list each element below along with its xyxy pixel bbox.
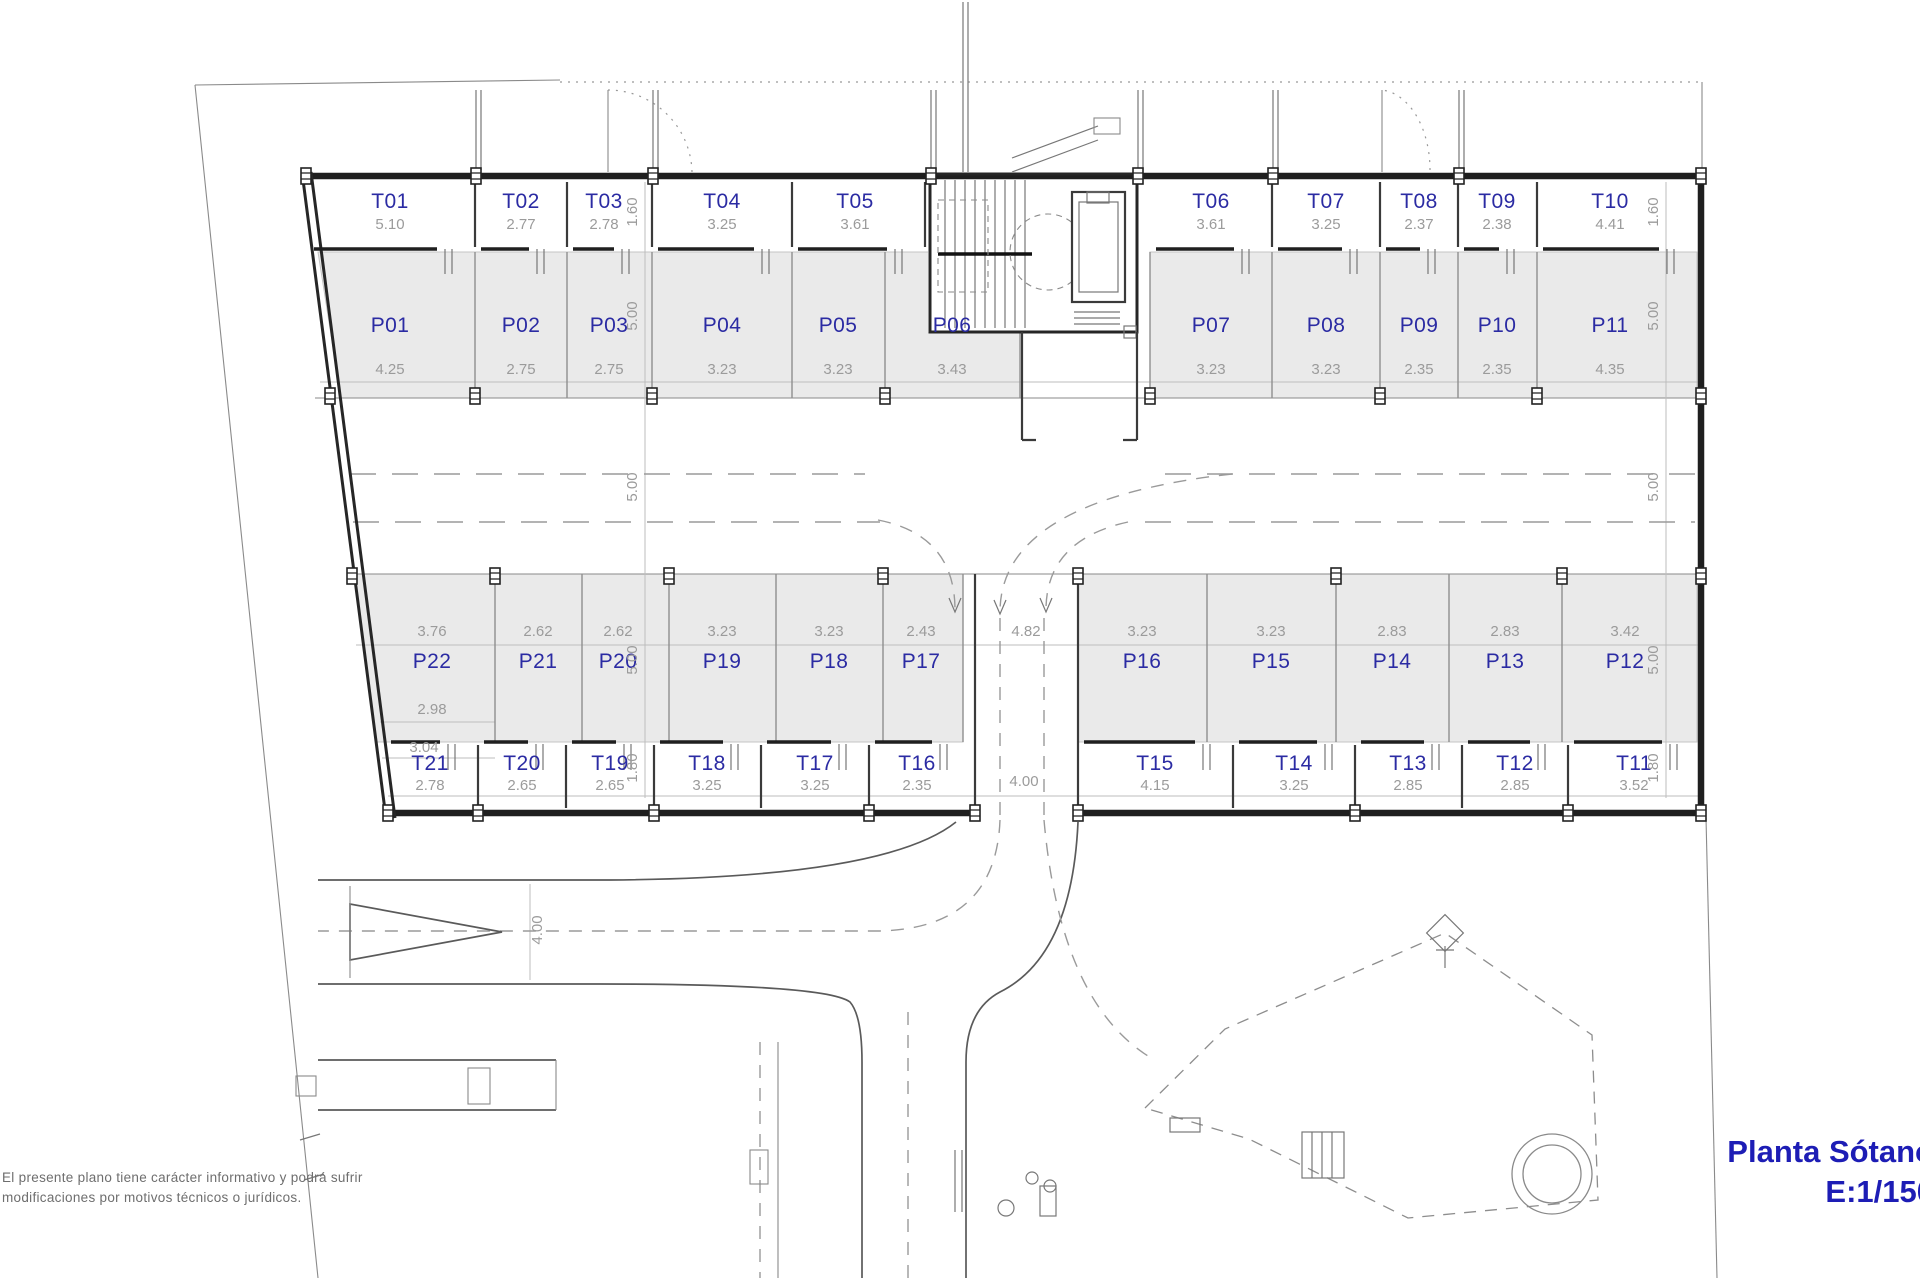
parking-dim-P16: 3.23 <box>1127 623 1156 640</box>
parking-dim-P07: 3.23 <box>1196 361 1225 378</box>
terrace-layout <box>955 915 1598 1218</box>
storage-dim-T02: 2.77 <box>506 216 535 233</box>
storage-dim-T01: 5.10 <box>375 216 404 233</box>
parking-dim-P12: 3.42 <box>1610 623 1639 640</box>
storage-dim-T21: 2.78 <box>415 777 444 794</box>
parking-label-P21: P21 <box>519 650 558 673</box>
parking-label-P08: P08 <box>1307 314 1346 337</box>
storage-dim-T16: 2.35 <box>902 777 931 794</box>
storage-label-T07: T07 <box>1307 190 1344 213</box>
storage-label-T05: T05 <box>836 190 873 213</box>
parking-label-P10: P10 <box>1478 314 1517 337</box>
vdim-aisle-left: 5.00 <box>624 472 641 501</box>
storage-dim-T06: 3.61 <box>1196 216 1225 233</box>
parking-dim-P05: 3.23 <box>823 361 852 378</box>
disclaimer-note: El presente plano tiene carácter informa… <box>2 1168 502 1209</box>
parking-label-P09: P09 <box>1400 314 1439 337</box>
dim-p22-b: 3.04 <box>409 739 438 756</box>
storage-label-T20: T20 <box>503 752 540 775</box>
elevator-icon <box>1072 192 1125 302</box>
parking-label-P05: P05 <box>819 314 858 337</box>
parking-label-P12: P12 <box>1606 650 1645 673</box>
vdim-parking-right: 5.00 <box>1645 301 1662 330</box>
parking-label-P13: P13 <box>1486 650 1525 673</box>
storage-label-T01: T01 <box>371 190 408 213</box>
storage-dim-T14: 3.25 <box>1279 777 1308 794</box>
parking-label-P16: P16 <box>1123 650 1162 673</box>
parking-label-P11: P11 <box>1591 314 1628 337</box>
parking-label-P01: P01 <box>371 314 410 337</box>
parking-label-P15: P15 <box>1252 650 1291 673</box>
storage-label-T06: T06 <box>1192 190 1229 213</box>
parking-dim-P01: 4.25 <box>375 361 404 378</box>
storage-label-T14: T14 <box>1275 752 1312 775</box>
parking-label-P22: P22 <box>413 650 452 673</box>
storage-label-T17: T17 <box>796 752 833 775</box>
storage-dim-T08: 2.37 <box>1404 216 1433 233</box>
dim-p22-a: 2.98 <box>417 701 446 718</box>
parking-dim-P09: 2.35 <box>1404 361 1433 378</box>
vdim-lower-storage-left: 1.80 <box>624 753 641 782</box>
parking-label-P07: P07 <box>1192 314 1231 337</box>
parking-dim-P03: 2.75 <box>594 361 623 378</box>
storage-label-T02: T02 <box>502 190 539 213</box>
parking-dim-P06: 3.43 <box>937 361 966 378</box>
storage-label-T13: T13 <box>1389 752 1426 775</box>
floor-plan-page: T015.10T022.77T032.78T043.25T053.61T063.… <box>0 0 1920 1280</box>
storage-label-T09: T09 <box>1478 190 1515 213</box>
parking-label-P03: P03 <box>590 314 629 337</box>
parking-dim-P08: 3.23 <box>1311 361 1340 378</box>
parking-dim-P21: 2.62 <box>523 623 552 640</box>
door-swing-icon <box>1382 90 1430 170</box>
parking-dim-P14: 2.83 <box>1377 623 1406 640</box>
door-swing-icon <box>608 90 692 172</box>
vdim-lower-storage-right: 1.80 <box>1645 753 1662 782</box>
storage-label-T03: T03 <box>585 190 622 213</box>
upper-site-details <box>476 2 1464 172</box>
parking-dim-P04: 3.23 <box>707 361 736 378</box>
vdim-lower-parking-right: 5.00 <box>1645 645 1662 674</box>
grill-icon <box>1302 1132 1344 1178</box>
vdim-lower-parking-left: 5.00 <box>624 645 641 674</box>
vdim-parking-left: 5.00 <box>624 301 641 330</box>
storage-dim-T18: 3.25 <box>692 777 721 794</box>
parking-dim-P18: 3.23 <box>814 623 843 640</box>
parking-dim-P19: 3.23 <box>707 623 736 640</box>
storage-dim-T09: 2.38 <box>1482 216 1511 233</box>
well-icon <box>1512 1134 1592 1214</box>
storage-dim-T13: 2.85 <box>1393 777 1422 794</box>
parking-dim-P22: 3.76 <box>417 623 446 640</box>
dim-road-width: 4.00 <box>1009 773 1038 790</box>
parking-label-P04: P04 <box>703 314 742 337</box>
storage-label-T18: T18 <box>688 752 725 775</box>
disclaimer-line-2: modificaciones por motivos técnicos o ju… <box>2 1188 502 1208</box>
plan-title: Planta Sótano E:1/150 <box>1727 1132 1920 1213</box>
parking-dim-P10: 2.35 <box>1482 361 1511 378</box>
storage-label-T12: T12 <box>1496 752 1533 775</box>
storage-dim-T15: 4.15 <box>1140 777 1169 794</box>
parking-label-P17: P17 <box>902 650 941 673</box>
vdim-aisle-right: 5.00 <box>1645 472 1662 501</box>
storage-label-T08: T08 <box>1400 190 1437 213</box>
vdim-storage-right: 1.60 <box>1645 197 1662 226</box>
parking-dim-P15: 3.23 <box>1256 623 1285 640</box>
storage-dim-T19: 2.65 <box>595 777 624 794</box>
storage-dim-T10: 4.41 <box>1595 216 1624 233</box>
parking-label-P18: P18 <box>810 650 849 673</box>
parking-label-P19: P19 <box>703 650 742 673</box>
storage-dim-T04: 3.25 <box>707 216 736 233</box>
disclaimer-line-1: El presente plano tiene carácter informa… <box>2 1168 502 1188</box>
ramp-arrow-icon <box>350 904 502 960</box>
site-roads <box>318 820 1148 1278</box>
parking-dim-P02: 2.75 <box>506 361 535 378</box>
storage-label-T15: T15 <box>1136 752 1173 775</box>
vdim-storage-left: 1.60 <box>624 197 641 226</box>
bench-icon <box>1170 1118 1200 1132</box>
storage-dim-T12: 2.85 <box>1500 777 1529 794</box>
light-well-icon <box>1427 915 1464 952</box>
storage-dim-T05: 3.61 <box>840 216 869 233</box>
parking-dim-P20: 2.62 <box>603 623 632 640</box>
storage-dim-T17: 3.25 <box>800 777 829 794</box>
floor-plan-drawing: T015.10T022.77T032.78T043.25T053.61T063.… <box>0 0 1920 1280</box>
storage-dim-T03: 2.78 <box>589 216 618 233</box>
parking-label-P14: P14 <box>1373 650 1412 673</box>
storage-label-T16: T16 <box>898 752 935 775</box>
parking-label-P02: P02 <box>502 314 541 337</box>
storage-dim-T07: 3.25 <box>1311 216 1340 233</box>
storage-label-T04: T04 <box>703 190 740 213</box>
dim-ramp-width: 4.00 <box>529 915 546 944</box>
parking-dim-P17: 2.43 <box>906 623 935 640</box>
storage-label-T10: T10 <box>1591 190 1628 213</box>
dim-ramp-gap: 4.82 <box>1011 623 1040 640</box>
parking-label-P06: P06 <box>933 314 972 337</box>
plan-title-name: Planta Sótano <box>1727 1132 1920 1172</box>
plan-title-scale: E:1/150 <box>1727 1172 1920 1212</box>
storage-dim-T20: 2.65 <box>507 777 536 794</box>
parking-dim-P13: 2.83 <box>1490 623 1519 640</box>
entrance-ramp-icon <box>1012 126 1098 172</box>
parking-dim-P11: 4.35 <box>1595 361 1624 378</box>
